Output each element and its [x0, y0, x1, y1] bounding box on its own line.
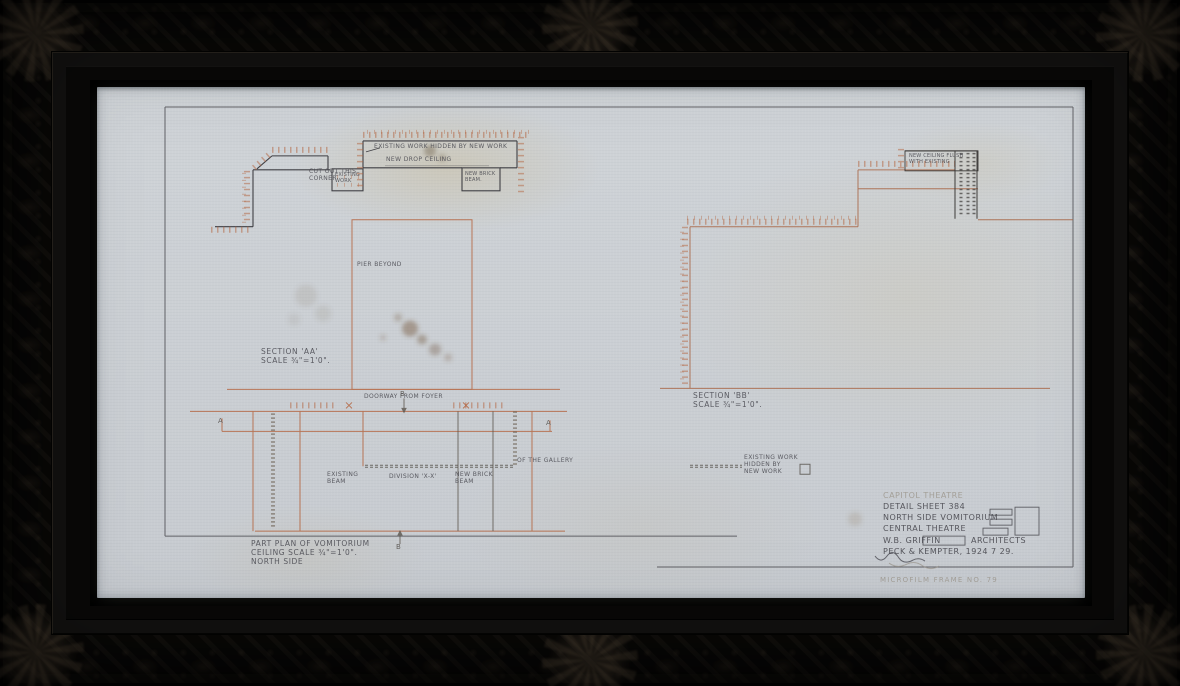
- label-existing-beam: EXISTING BEAM: [327, 471, 358, 485]
- title-detail-sheet: DETAIL SHEET 384: [883, 502, 965, 512]
- section-marker-a-right: A: [546, 419, 551, 427]
- label-new-brick-beam-top: NEW BRICK BEAM.: [465, 171, 495, 183]
- section-marker-b-bottom: B: [396, 543, 401, 551]
- label-new-drop-ceiling: NEW DROP CEILING: [386, 156, 452, 163]
- label-new-brick-beam-plan: NEW BRICK BEAM: [455, 471, 493, 485]
- label-existing-hidden-top: EXISTING WORK HIDDEN BY NEW WORK: [374, 143, 507, 150]
- label-of-the-gallery: OF THE GALLERY: [517, 457, 573, 464]
- detail-left-profile: [215, 156, 363, 227]
- label-section-bb: SECTION 'BB' SCALE ¾"=1'0".: [693, 391, 762, 409]
- title-central-theatre: CENTRAL THEATRE: [883, 524, 966, 534]
- title-architects-label: ARCHITECTS: [971, 536, 1026, 546]
- title-north-side: NORTH SIDE VOMITORIUM: [883, 513, 998, 523]
- microfilm-caption: MICROFILM FRAME NO. 79: [880, 576, 998, 584]
- part-plan-linework: [190, 398, 567, 544]
- section-marker-b-top: B: [400, 390, 405, 398]
- drawing-sheet: CUT OUT THIS CORNER EXISTING WORK EXISTI…: [97, 87, 1085, 598]
- label-division-xx: DIVISION 'X-X': [389, 473, 437, 480]
- frame-opening: CUT OUT THIS CORNER EXISTING WORK EXISTI…: [90, 80, 1092, 606]
- framed-drawing-photo: CUT OUT THIS CORNER EXISTING WORK EXISTI…: [0, 0, 1180, 686]
- label-hidden-legend: EXISTING WORK HIDDEN BY NEW WORK: [744, 454, 798, 476]
- title-architect: W.B. GRIFFIN: [883, 536, 941, 546]
- title-firm-date: PECK & KEMPTER, 1924 7 29.: [883, 547, 1014, 557]
- label-existing-work: EXISTING WORK: [335, 172, 360, 184]
- label-part-plan: PART PLAN OF VOMITORIUM CEILING SCALE ¾"…: [251, 539, 370, 566]
- section-bb-outline: [660, 151, 1073, 389]
- title-project-pencil: CAPITOL THEATRE: [883, 491, 963, 501]
- label-new-ceiling-flush: NEW CEILING FLUSH WITH EXISTING: [909, 153, 979, 165]
- section-marker-a-left: A: [218, 417, 223, 425]
- label-pier-beyond: PIER BEYOND: [357, 261, 402, 268]
- label-section-aa: SECTION 'AA' SCALE ¾"=1'0".: [261, 347, 330, 365]
